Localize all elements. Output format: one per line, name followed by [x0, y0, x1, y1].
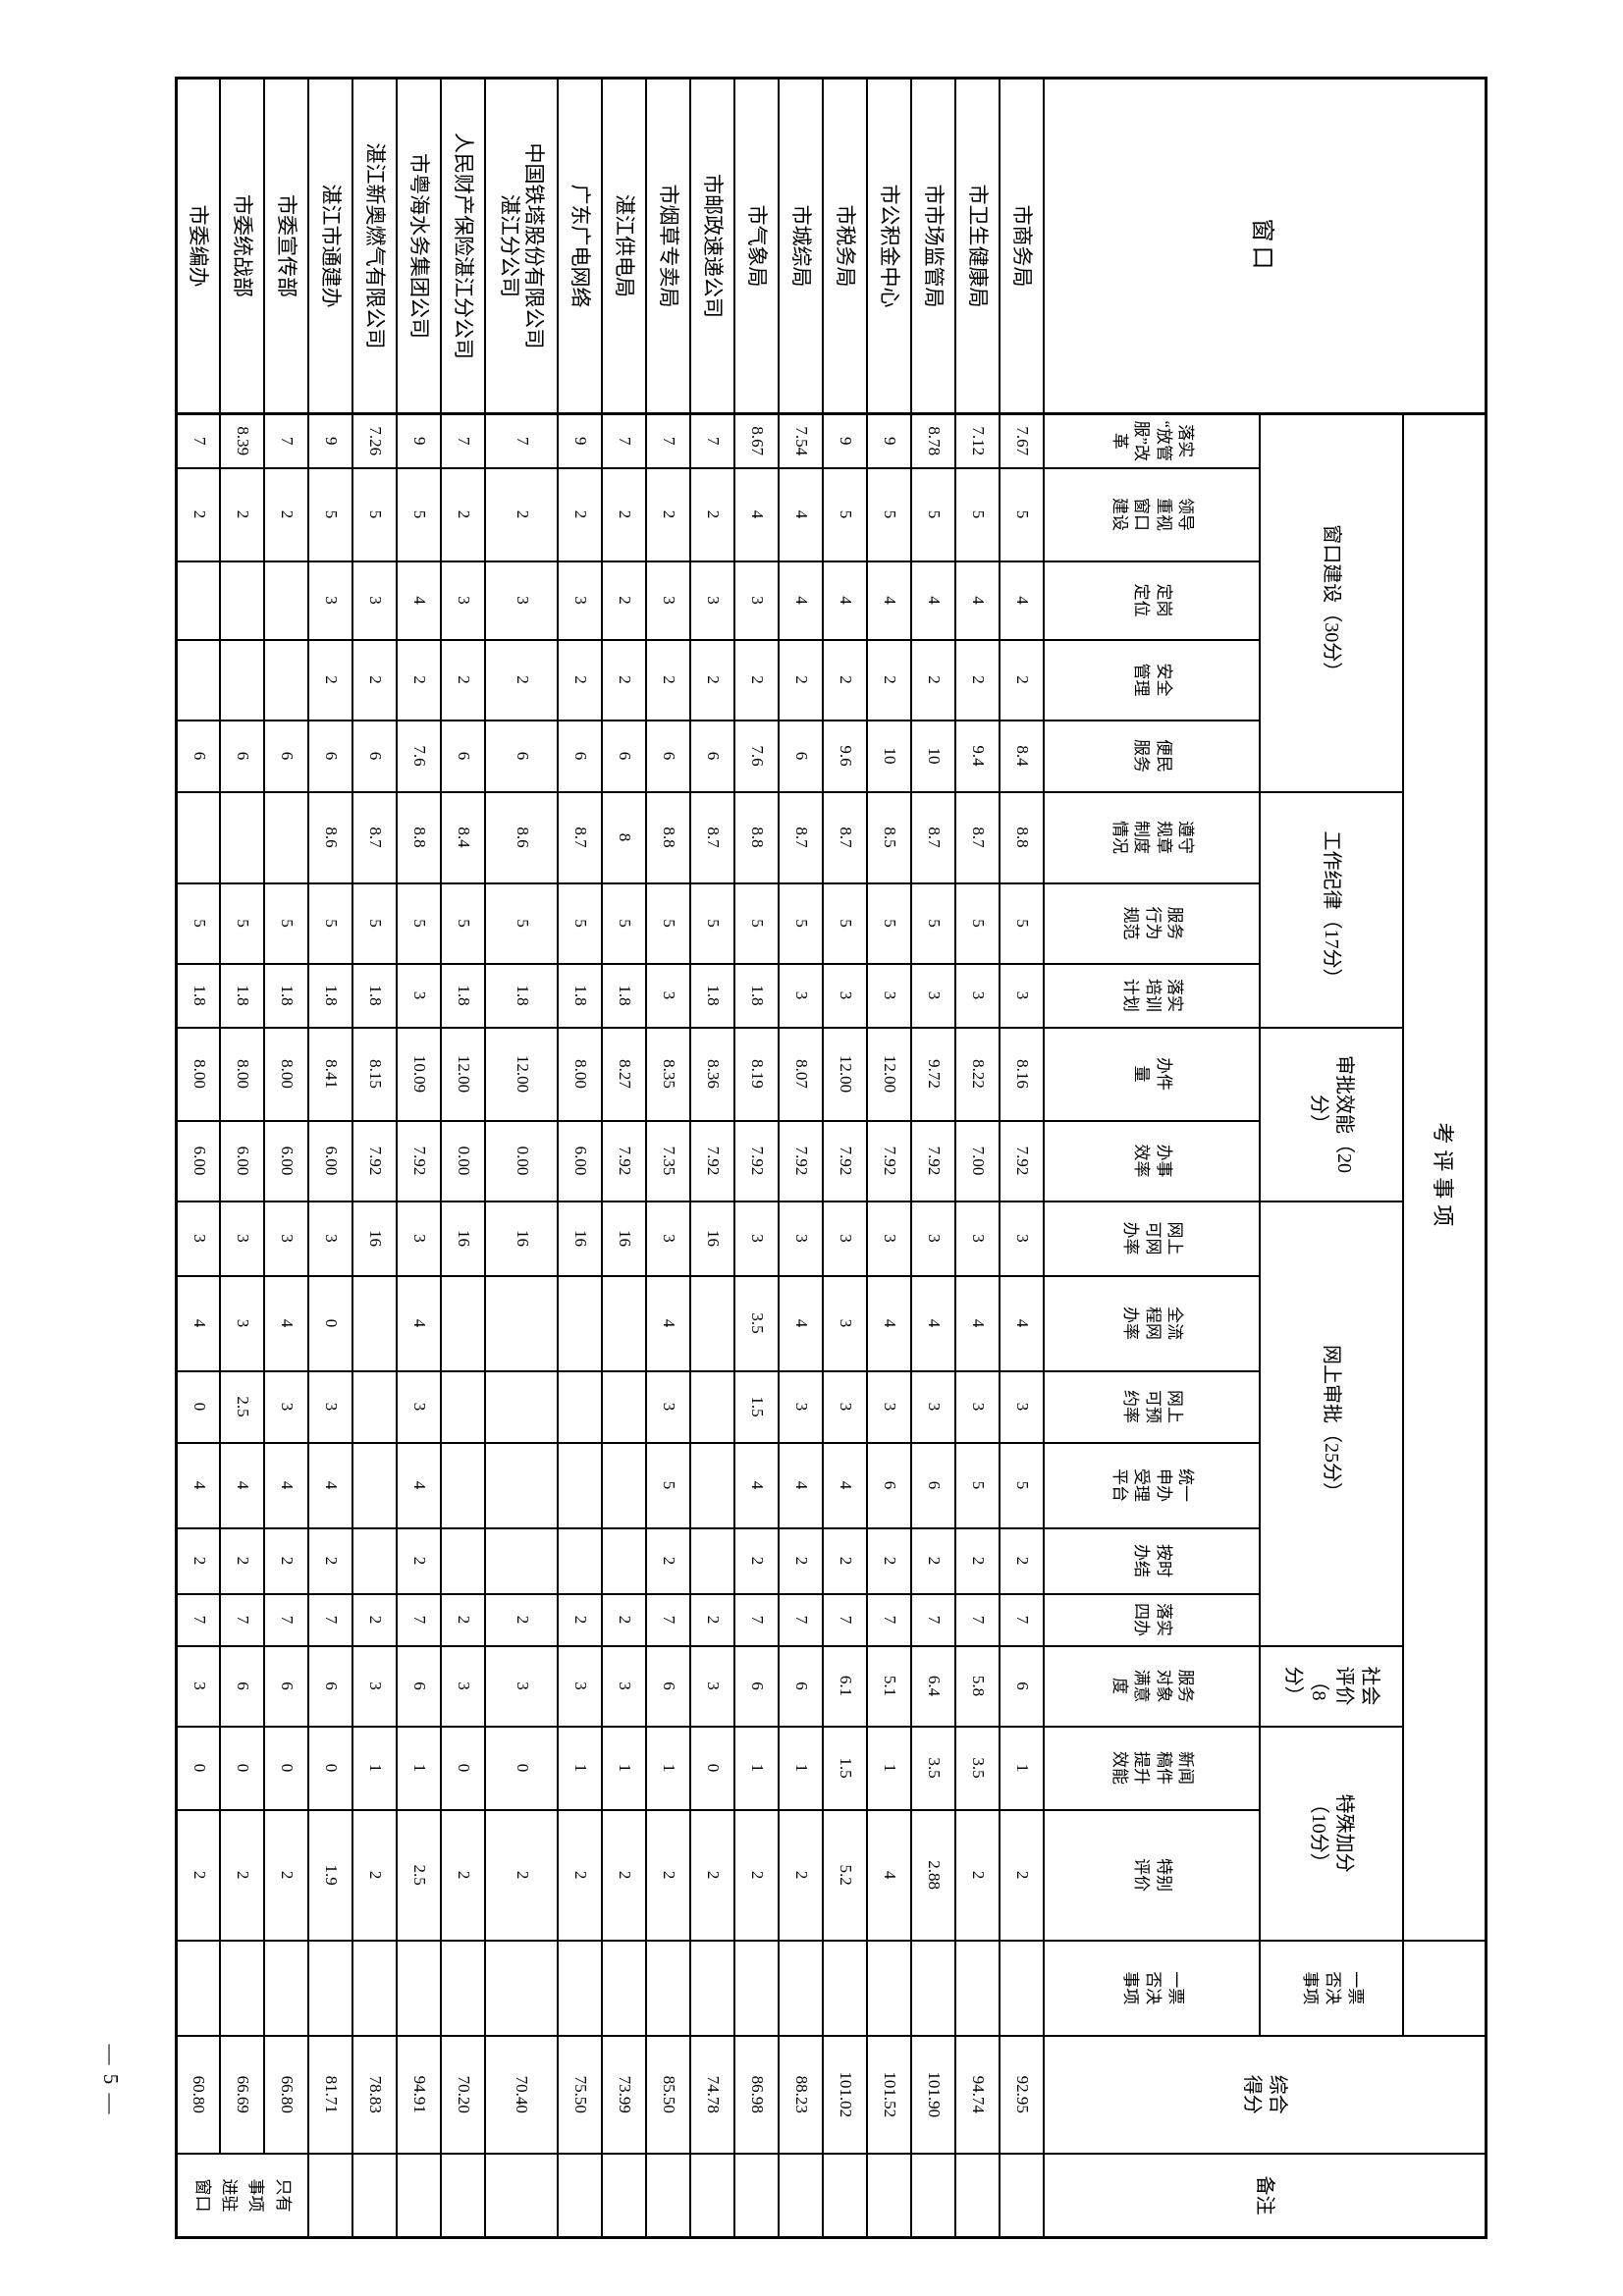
- value-cell: 7: [647, 1594, 691, 1646]
- value-cell: 2: [1001, 1810, 1045, 1941]
- value-cell: 8.35: [647, 1028, 691, 1121]
- metric-header-14: 统一 申办 受理 平台: [1045, 1443, 1261, 1528]
- value-cell: 5: [442, 883, 486, 964]
- value-cell: 3: [177, 1646, 221, 1727]
- value-cell: 2: [603, 561, 647, 640]
- value-cell: [486, 1528, 559, 1594]
- value-cell: 5: [221, 883, 265, 964]
- score-cell: 70.20: [442, 2036, 486, 2154]
- table-row: 市城综局7.5444268.7538.077.9234342761288.23: [780, 79, 824, 2238]
- value-cell: 0: [177, 1371, 221, 1443]
- value-cell: 2: [647, 468, 691, 561]
- value-cell: 6: [442, 721, 486, 792]
- metric-header-13: 网上 可预 约率: [1045, 1371, 1261, 1443]
- value-cell: 4: [309, 1443, 353, 1528]
- remark-cell: [691, 2154, 735, 2238]
- value-cell: 0: [691, 1727, 735, 1810]
- value-cell: 6.00: [559, 1121, 603, 1201]
- value-cell: [221, 640, 265, 721]
- value-cell: 5: [1001, 883, 1045, 964]
- group-header-3: 审批效能（20 分）: [1261, 1028, 1404, 1201]
- value-cell: 2: [735, 1810, 780, 1941]
- table-row: 市邮政速递公司723268.751.88.367.9216230274.78: [691, 79, 735, 2238]
- value-cell: 2: [309, 640, 353, 721]
- value-cell: 3: [868, 1201, 912, 1276]
- value-cell: 0: [309, 1276, 353, 1371]
- value-cell: 4: [780, 468, 824, 561]
- value-cell: [221, 561, 265, 640]
- value-cell: 6: [398, 1646, 442, 1727]
- value-cell: 1.8: [486, 964, 559, 1028]
- value-cell: 1.8: [559, 964, 603, 1028]
- value-cell: 7: [691, 414, 735, 468]
- value-cell: 2: [559, 1594, 603, 1646]
- value-cell: 3: [647, 1371, 691, 1443]
- value-cell: 5: [868, 883, 912, 964]
- value-cell: 5: [647, 883, 691, 964]
- value-cell: 7.67: [1001, 414, 1045, 468]
- value-cell: 8.7: [824, 792, 868, 883]
- value-cell: 3: [912, 1371, 956, 1443]
- score-cell: 66.69: [221, 2036, 265, 2154]
- veto-cell: [353, 1941, 398, 2036]
- veto-cell: [603, 1941, 647, 2036]
- score-cell: 60.80: [177, 2036, 221, 2154]
- table-row: 市委统战部8.392651.88.006.00332.542760266.69: [221, 79, 265, 2238]
- value-cell: 5: [265, 883, 309, 964]
- veto-cell: [1001, 1941, 1045, 2036]
- remark-cell: [868, 2154, 912, 2238]
- value-cell: [486, 1371, 559, 1443]
- table-row: 市气象局8.674327.68.851.88.197.9233.51.54276…: [735, 79, 780, 2238]
- value-cell: 3: [956, 964, 1001, 1028]
- value-cell: 9.72: [912, 1028, 956, 1121]
- value-cell: 7: [177, 1594, 221, 1646]
- value-cell: 6: [912, 1443, 956, 1528]
- org-name-cell: 市委编办: [177, 79, 221, 414]
- value-cell: 1: [559, 1727, 603, 1810]
- score-cell: 101.90: [912, 2036, 956, 2154]
- value-cell: 1.5: [824, 1727, 868, 1810]
- value-cell: 6: [691, 721, 735, 792]
- value-cell: 5: [824, 468, 868, 561]
- value-cell: 1: [398, 1727, 442, 1810]
- value-cell: [177, 561, 221, 640]
- value-cell: 2: [442, 468, 486, 561]
- value-cell: 2: [486, 468, 559, 561]
- veto-cell: [691, 1941, 735, 2036]
- value-cell: [353, 1528, 398, 1594]
- value-cell: 2: [442, 1594, 486, 1646]
- value-cell: 3: [309, 1201, 353, 1276]
- value-cell: 5: [603, 883, 647, 964]
- value-cell: 6: [1001, 1646, 1045, 1727]
- org-name-cell: 湛江新奥燃气有限公司: [353, 79, 398, 414]
- value-cell: 5: [1001, 1443, 1045, 1528]
- value-cell: 2: [603, 1810, 647, 1941]
- value-cell: 6: [486, 721, 559, 792]
- value-cell: 7: [486, 414, 559, 468]
- metric-header-18: 新闻 稿件 提升 效能: [1045, 1727, 1261, 1810]
- table-row: 市公积金中心9542108.55312.007.923436275.114101…: [868, 79, 912, 2238]
- value-cell: 1: [868, 1727, 912, 1810]
- veto-cell: [559, 1941, 603, 2036]
- value-cell: [265, 792, 309, 883]
- value-cell: 5: [398, 883, 442, 964]
- value-cell: 2: [647, 1528, 691, 1594]
- table-row: 湛江新奥燃气有限公司7.2653268.751.88.157.921623127…: [353, 79, 398, 2238]
- metric-header-8: 落实 培训 计划: [1045, 964, 1261, 1028]
- value-cell: 3: [824, 1201, 868, 1276]
- value-cell: 6: [309, 1646, 353, 1727]
- value-cell: 7: [309, 1594, 353, 1646]
- group-header-1: 窗口建设（30分）: [1261, 414, 1404, 792]
- value-cell: 2: [647, 1810, 691, 1941]
- value-cell: [265, 561, 309, 640]
- value-cell: 7: [1001, 1594, 1045, 1646]
- value-cell: 12.00: [486, 1028, 559, 1121]
- org-name-cell: 湛江供电局: [603, 79, 647, 414]
- value-cell: 2: [824, 1528, 868, 1594]
- value-cell: 16: [559, 1201, 603, 1276]
- value-cell: 5: [177, 883, 221, 964]
- value-cell: 6: [603, 721, 647, 792]
- value-cell: 0: [177, 1727, 221, 1810]
- value-cell: 7.92: [603, 1121, 647, 1201]
- metric-header-12: 全流 程网 办率: [1045, 1276, 1261, 1371]
- value-cell: 0: [442, 1727, 486, 1810]
- value-cell: [603, 1276, 647, 1371]
- value-cell: 10: [868, 721, 912, 792]
- value-cell: 7.00: [956, 1121, 1001, 1201]
- org-name-cell: 市市场监管局: [912, 79, 956, 414]
- value-cell: 5: [309, 883, 353, 964]
- value-cell: 7: [265, 1594, 309, 1646]
- group-header-5: 社会 评价 （8 分）: [1261, 1646, 1404, 1727]
- value-cell: 4: [780, 1276, 824, 1371]
- value-cell: 9.4: [956, 721, 1001, 792]
- veto-cell: [309, 1941, 353, 2036]
- value-cell: 2: [221, 468, 265, 561]
- remark-cell: [559, 2154, 603, 2238]
- value-cell: 3: [647, 561, 691, 640]
- value-cell: [603, 1528, 647, 1594]
- value-cell: 3: [647, 964, 691, 1028]
- value-cell: 9: [868, 414, 912, 468]
- value-cell: 6.1: [824, 1646, 868, 1727]
- value-cell: 4: [1001, 1276, 1045, 1371]
- value-cell: 3: [912, 1201, 956, 1276]
- value-cell: 5: [353, 883, 398, 964]
- value-cell: 16: [486, 1201, 559, 1276]
- value-cell: 4: [912, 561, 956, 640]
- score-cell: 101.52: [868, 2036, 912, 2154]
- rotated-page-canvas: 窗口考评事项综合 得分备注窗口建设（30分）工作纪律（17分）审批效能（20 分…: [0, 0, 1623, 2296]
- value-cell: 8.8: [647, 792, 691, 883]
- value-cell: 3: [398, 964, 442, 1028]
- score-cell: 70.40: [486, 2036, 559, 2154]
- value-cell: 9: [559, 414, 603, 468]
- metric-header-9: 办件 量: [1045, 1028, 1261, 1121]
- value-cell: 5.8: [956, 1646, 1001, 1727]
- value-cell: 6: [780, 1646, 824, 1727]
- value-cell: 4: [824, 1443, 868, 1528]
- value-cell: 2: [353, 1810, 398, 1941]
- value-cell: 3: [912, 964, 956, 1028]
- value-cell: 2: [353, 640, 398, 721]
- value-cell: 0: [265, 1727, 309, 1810]
- value-cell: 2: [647, 640, 691, 721]
- value-cell: 1.8: [221, 964, 265, 1028]
- table-row: 市委编办72651.88.006.0034042730260.80: [177, 79, 221, 2238]
- veto-cell: [780, 1941, 824, 2036]
- remark-cell: [442, 2154, 486, 2238]
- value-cell: 5: [486, 883, 559, 964]
- value-cell: [486, 1276, 559, 1371]
- value-cell: 2: [177, 468, 221, 561]
- value-cell: 7: [956, 1594, 1001, 1646]
- value-cell: 7.6: [735, 721, 780, 792]
- value-cell: 2: [956, 1528, 1001, 1594]
- value-cell: 1.8: [442, 964, 486, 1028]
- value-cell: 2: [780, 1810, 824, 1941]
- value-cell: 4: [177, 1443, 221, 1528]
- value-cell: 3: [1001, 1371, 1045, 1443]
- score-cell: 85.50: [647, 2036, 691, 2154]
- page-number: — 5 —: [98, 2019, 123, 2141]
- value-cell: [559, 1276, 603, 1371]
- value-cell: 7.92: [868, 1121, 912, 1201]
- remark-cell: [603, 2154, 647, 2238]
- value-cell: 2: [442, 640, 486, 721]
- value-cell: 3: [442, 1646, 486, 1727]
- metric-header-11: 网上 可网 办率: [1045, 1201, 1261, 1276]
- value-cell: 6: [735, 1646, 780, 1727]
- value-cell: [353, 1443, 398, 1528]
- value-cell: 16: [353, 1201, 398, 1276]
- table-row: 湛江市通建办953268.651.88.416.00303427601.981.…: [309, 79, 353, 2238]
- value-cell: 5: [398, 468, 442, 561]
- value-cell: 7: [442, 414, 486, 468]
- value-cell: 3: [353, 561, 398, 640]
- table-row: 中国铁塔股份有限公司 湛江分公司723268.651.812.000.00162…: [486, 79, 559, 2238]
- value-cell: 4: [868, 1810, 912, 1941]
- value-cell: 3: [559, 1646, 603, 1727]
- value-cell: 4: [398, 1443, 442, 1528]
- remark-cell: [912, 2154, 956, 2238]
- value-cell: 6: [265, 721, 309, 792]
- value-cell: 4: [956, 561, 1001, 640]
- value-cell: 6: [309, 721, 353, 792]
- remark-cell: [956, 2154, 1001, 2238]
- value-cell: 2: [735, 640, 780, 721]
- value-cell: 2: [868, 640, 912, 721]
- value-cell: [221, 792, 265, 883]
- header-veto-top: [1404, 1941, 1487, 2036]
- value-cell: 3: [603, 1646, 647, 1727]
- value-cell: 1.8: [353, 964, 398, 1028]
- value-cell: 2: [486, 640, 559, 721]
- value-cell: 7.92: [912, 1121, 956, 1201]
- value-cell: [691, 1443, 735, 1528]
- value-cell: 2: [691, 1594, 735, 1646]
- value-cell: 6: [559, 721, 603, 792]
- value-cell: 4: [735, 468, 780, 561]
- value-cell: 5: [912, 883, 956, 964]
- value-cell: 8.6: [486, 792, 559, 883]
- value-cell: 7.92: [780, 1121, 824, 1201]
- value-cell: 2: [559, 468, 603, 561]
- value-cell: 2: [177, 1810, 221, 1941]
- value-cell: [691, 1528, 735, 1594]
- value-cell: 2: [353, 1594, 398, 1646]
- score-cell: 75.50: [559, 2036, 603, 2154]
- org-name-cell: 市商务局: [1001, 79, 1045, 414]
- value-cell: [691, 1371, 735, 1443]
- metric-header-4: 安全 管理: [1045, 640, 1261, 721]
- value-cell: 8.39: [221, 414, 265, 468]
- value-cell: 2: [221, 1810, 265, 1941]
- value-cell: 16: [603, 1201, 647, 1276]
- veto-cell: [735, 1941, 780, 2036]
- metric-header-1: 落实 “放管 服”改革: [1045, 414, 1261, 468]
- org-name-cell: 市气象局: [735, 79, 780, 414]
- group-header-2: 工作纪律（17分）: [1261, 792, 1404, 1028]
- score-cell: 92.95: [1001, 2036, 1045, 2154]
- metric-header-6: 遵守 规章 制度 情况: [1045, 792, 1261, 883]
- value-cell: 3: [177, 1201, 221, 1276]
- veto-cell: [824, 1941, 868, 2036]
- org-name-cell: 市卫生健康局: [956, 79, 1001, 414]
- value-cell: 2: [824, 640, 868, 721]
- value-cell: 4: [780, 561, 824, 640]
- value-cell: 3.5: [956, 1727, 1001, 1810]
- value-cell: 3: [265, 1201, 309, 1276]
- value-cell: 10.09: [398, 1028, 442, 1121]
- value-cell: 1.8: [691, 964, 735, 1028]
- header-evaluation-items: 考评事项: [1404, 414, 1487, 1941]
- score-cell: 86.98: [735, 2036, 780, 2154]
- value-cell: 3: [353, 1646, 398, 1727]
- value-cell: 5: [309, 468, 353, 561]
- value-cell: 5: [824, 883, 868, 964]
- value-cell: 5: [353, 468, 398, 561]
- table-row: 市税务局95429.68.75312.007.923334276.11.55.2…: [824, 79, 868, 2238]
- value-cell: 8.00: [177, 1028, 221, 1121]
- value-cell: 7.92: [353, 1121, 398, 1201]
- table-row: 市卫生健康局7.125429.48.7538.227.003435275.83.…: [956, 79, 1001, 2238]
- value-cell: [353, 1276, 398, 1371]
- org-name-cell: 市公积金中心: [868, 79, 912, 414]
- value-cell: 5: [956, 1443, 1001, 1528]
- table-row: 市市场监管局8.78542108.7539.727.923436276.43.5…: [912, 79, 956, 2238]
- header-veto-metric: 一票 否决 事项: [1045, 1941, 1261, 2036]
- value-cell: 3: [398, 1371, 442, 1443]
- value-cell: 7: [647, 414, 691, 468]
- value-cell: 6: [221, 1646, 265, 1727]
- value-cell: 6: [221, 721, 265, 792]
- veto-cell: [868, 1941, 912, 2036]
- value-cell: 3: [265, 1371, 309, 1443]
- value-cell: 6: [780, 721, 824, 792]
- value-cell: 8.8: [1001, 792, 1045, 883]
- value-cell: [559, 1371, 603, 1443]
- value-cell: 7.6: [398, 721, 442, 792]
- value-cell: 2: [442, 1810, 486, 1941]
- value-cell: 2.5: [398, 1810, 442, 1941]
- score-cell: 94.91: [398, 2036, 442, 2154]
- value-cell: 3.5: [735, 1276, 780, 1371]
- metric-header-10: 办事 效率: [1045, 1121, 1261, 1201]
- value-cell: 8.19: [735, 1028, 780, 1121]
- value-cell: 7: [780, 1594, 824, 1646]
- remark-cell: [353, 2154, 398, 2238]
- value-cell: 8.78: [912, 414, 956, 468]
- value-cell: 1.5: [735, 1371, 780, 1443]
- value-cell: 4: [221, 1443, 265, 1528]
- value-cell: 2: [912, 640, 956, 721]
- value-cell: 5.1: [868, 1646, 912, 1727]
- value-cell: 2: [398, 640, 442, 721]
- veto-cell: [398, 1941, 442, 2036]
- value-cell: [442, 1276, 486, 1371]
- org-name-cell: 市城综局: [780, 79, 824, 414]
- value-cell: 8.36: [691, 1028, 735, 1121]
- value-cell: 2: [956, 1810, 1001, 1941]
- value-cell: 3: [824, 1276, 868, 1371]
- value-cell: [486, 1443, 559, 1528]
- value-cell: 0: [486, 1727, 559, 1810]
- value-cell: 3: [486, 1646, 559, 1727]
- table-row: 人民财产保险湛江分公司723268.451.812.000.0016230270…: [442, 79, 486, 2238]
- group-header-4: 网上审批（25分）: [1261, 1201, 1404, 1646]
- value-cell: 2: [691, 640, 735, 721]
- value-cell: 5: [912, 468, 956, 561]
- value-cell: 7.92: [398, 1121, 442, 1201]
- value-cell: 12.00: [824, 1028, 868, 1121]
- org-name-cell: 市委统战部: [221, 79, 265, 414]
- value-cell: 3: [956, 1371, 1001, 1443]
- value-cell: 4: [735, 1443, 780, 1528]
- value-cell: 1.8: [309, 964, 353, 1028]
- remark-cell: [735, 2154, 780, 2238]
- evaluation-table: 窗口考评事项综合 得分备注窗口建设（30分）工作纪律（17分）审批效能（20 分…: [175, 77, 1488, 2239]
- value-cell: [559, 1528, 603, 1594]
- org-name-cell: 人民财产保险湛江分公司: [442, 79, 486, 414]
- value-cell: 0.00: [486, 1121, 559, 1201]
- value-cell: 3: [780, 1371, 824, 1443]
- value-cell: 3: [824, 1371, 868, 1443]
- value-cell: 6: [868, 1443, 912, 1528]
- value-cell: 1: [603, 1727, 647, 1810]
- value-cell: 7.35: [647, 1121, 691, 1201]
- value-cell: 3: [868, 1371, 912, 1443]
- value-cell: 8.5: [868, 792, 912, 883]
- value-cell: 2.5: [221, 1371, 265, 1443]
- value-cell: 8.6: [309, 792, 353, 883]
- value-cell: 8.27: [603, 1028, 647, 1121]
- value-cell: 3: [309, 1371, 353, 1443]
- remark-cell: [824, 2154, 868, 2238]
- value-cell: 8.16: [1001, 1028, 1045, 1121]
- value-cell: 3: [868, 964, 912, 1028]
- value-cell: 2: [177, 1528, 221, 1594]
- value-cell: 6.00: [309, 1121, 353, 1201]
- value-cell: 3: [691, 561, 735, 640]
- value-cell: [603, 1443, 647, 1528]
- value-cell: 4: [398, 1276, 442, 1371]
- value-cell: 3: [221, 1201, 265, 1276]
